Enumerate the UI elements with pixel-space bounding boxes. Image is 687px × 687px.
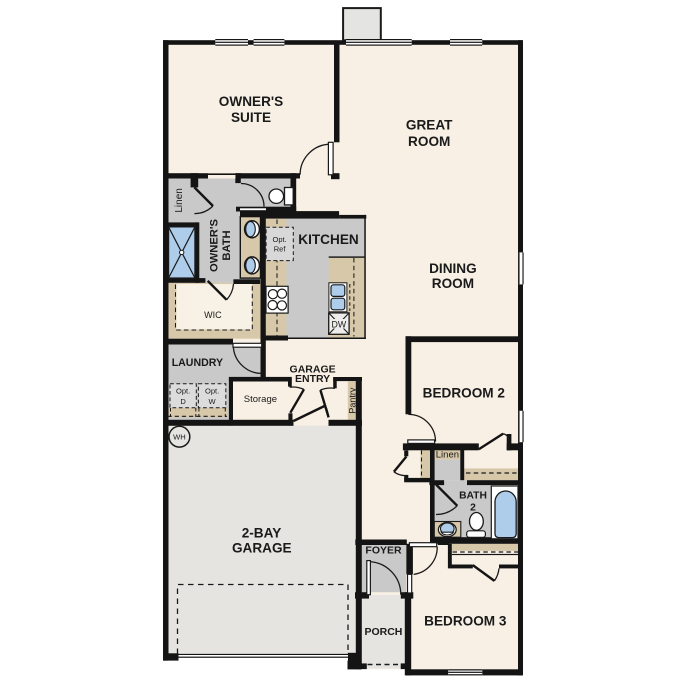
- svg-text:ENTRY: ENTRY: [295, 373, 330, 385]
- svg-text:Opt.: Opt.: [205, 386, 219, 395]
- svg-text:LAUNDRY: LAUNDRY: [172, 357, 223, 369]
- svg-text:PORCH: PORCH: [364, 626, 402, 638]
- svg-text:W: W: [209, 397, 217, 406]
- svg-text:KITCHEN: KITCHEN: [298, 232, 358, 247]
- svg-text:ROOM: ROOM: [432, 276, 474, 291]
- svg-text:BATH: BATH: [221, 230, 233, 260]
- svg-text:Ref: Ref: [274, 245, 287, 254]
- svg-text:Opt.: Opt.: [176, 386, 190, 395]
- svg-text:Storage: Storage: [244, 394, 277, 405]
- svg-text:SUITE: SUITE: [231, 110, 271, 125]
- svg-text:2: 2: [470, 503, 476, 514]
- svg-text:WIC: WIC: [204, 310, 222, 320]
- svg-text:Linen: Linen: [436, 450, 459, 461]
- svg-text:BEDROOM 2: BEDROOM 2: [423, 386, 506, 401]
- svg-text:DINING: DINING: [429, 261, 477, 276]
- svg-text:OWNER'S: OWNER'S: [219, 94, 283, 109]
- svg-text:BEDROOM 3: BEDROOM 3: [424, 614, 507, 629]
- svg-text:WH: WH: [173, 432, 186, 441]
- svg-text:Linen: Linen: [174, 188, 185, 212]
- svg-text:FOYER: FOYER: [365, 545, 402, 557]
- svg-text:DW: DW: [331, 319, 346, 329]
- svg-text:Pantry: Pantry: [348, 387, 358, 414]
- svg-text:D: D: [180, 397, 186, 406]
- svg-text:BATH: BATH: [459, 491, 487, 502]
- svg-text:ROOM: ROOM: [408, 134, 450, 149]
- svg-text:GARAGE: GARAGE: [232, 540, 292, 555]
- svg-text:2-BAY: 2-BAY: [242, 526, 282, 541]
- svg-text:Opt.: Opt.: [273, 235, 287, 244]
- svg-text:OWNER'S: OWNER'S: [208, 218, 220, 272]
- svg-text:GREAT: GREAT: [406, 118, 453, 133]
